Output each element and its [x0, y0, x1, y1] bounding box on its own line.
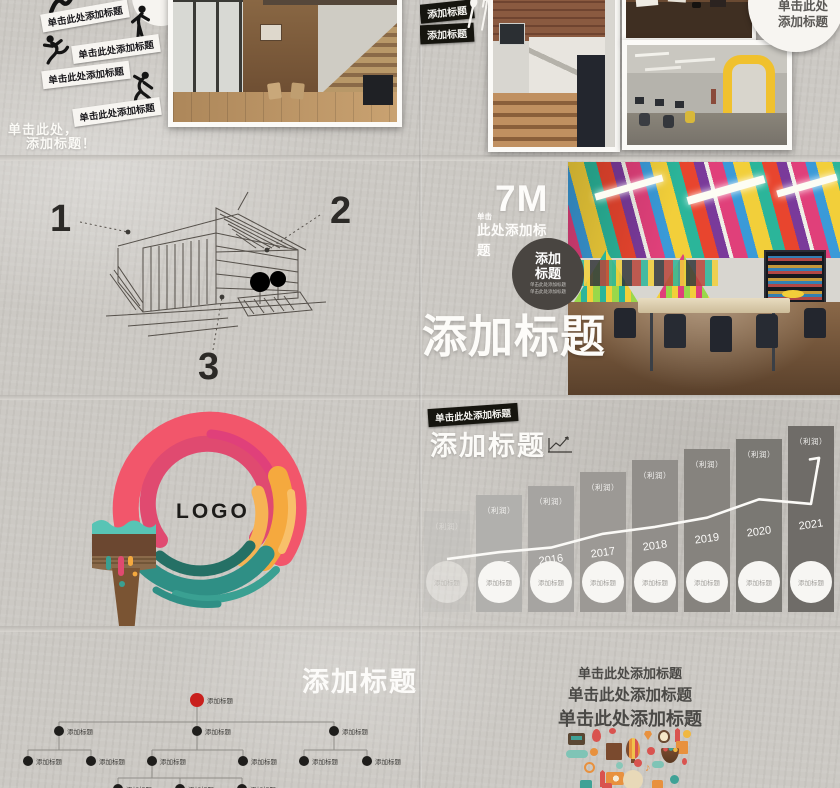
stat-block: 7M 单击 此处添加标题	[477, 182, 548, 215]
bar-year-label: 2017	[579, 544, 626, 562]
chart-bar: （利润）2017添加标题	[580, 472, 626, 612]
photo-chair	[639, 113, 650, 126]
node-dot	[192, 726, 202, 736]
tree-node: 添加标题	[113, 784, 152, 788]
desk-photo	[622, 0, 756, 42]
hab-icon	[626, 738, 640, 759]
bar-year-label: 2020	[735, 523, 782, 541]
dot-icon	[590, 748, 598, 756]
photo-person	[711, 89, 716, 104]
slide-logo-brush[interactable]: LOGO	[0, 400, 420, 626]
bar-value-label: （利润）	[632, 470, 678, 481]
dancer-figure-icon	[40, 32, 72, 68]
photo-monitor	[675, 101, 684, 108]
tree-node-label: 添加标题	[251, 756, 277, 766]
tree-node: 添加标题	[362, 756, 401, 766]
photo-monitor	[655, 99, 664, 106]
tree-node: 添加标题	[237, 784, 276, 788]
node-dot	[238, 756, 248, 766]
bar-value-label: （利润）	[736, 449, 782, 460]
photo-floor	[627, 113, 787, 145]
colorful-cafeteria-photo	[568, 162, 840, 395]
bar-year-label: 2019	[683, 530, 730, 548]
chart-bar: （利润）2021添加标题	[788, 426, 834, 612]
photo-book	[710, 0, 726, 7]
bar-year-label: 2018	[631, 537, 678, 555]
slide-profit-chart[interactable]: 单击此处添加标题 添加标题 （利润）2014添加标题（利润）2015添加标题（利…	[420, 400, 840, 626]
slide-7m-photo[interactable]: 7M 单击 此处添加标题 添加 标题 单击此处添加标题 单击此处添加标题 添加标…	[420, 162, 840, 395]
photo-chair	[664, 314, 686, 348]
slide-figures-cover[interactable]: 单击此处添加标题 单击此处添加标题 单击此处添加标题 单击此处添加标题 单击此处…	[0, 0, 420, 157]
root-dot	[190, 693, 204, 707]
bar-footer-circle: 添加标题	[478, 561, 520, 603]
tree-node-label: 添加标题	[207, 695, 233, 705]
bar-footer-circle: 添加标题	[530, 561, 572, 603]
bowl-icon	[661, 748, 679, 763]
circle-big-icon	[623, 770, 643, 788]
tree-node-label: 添加标题	[99, 756, 125, 766]
photo-chair	[290, 82, 305, 99]
title-strip: 单击此处添加标题	[71, 34, 161, 64]
slide-org-tree[interactable]: 添加标题 添加标题 添加标题 添加标题 添加标题 添加标题 添加标题 添加标题 …	[0, 632, 420, 788]
bar-value-label: （利润）	[684, 459, 730, 470]
photo-chair	[614, 308, 636, 338]
pencil-icon	[675, 728, 680, 742]
note-icon: ♪	[645, 763, 653, 774]
badge-small2: 单击此处添加标题	[530, 289, 566, 296]
stairwell-photo	[488, 0, 620, 152]
tree-node-label: 添加标题	[250, 784, 276, 788]
bar-chart: （利润）2014添加标题（利润）2015添加标题（利润）2016添加标题（利润）…	[420, 400, 840, 626]
tree-node-label: 添加标题	[188, 784, 214, 788]
tree-node-label: 添加标题	[36, 756, 62, 766]
chart-bar: （利润）2020添加标题	[736, 439, 782, 612]
template-preview-grid: 单击此处添加标题 单击此处添加标题 单击此处添加标题 单击此处添加标题 单击此处…	[0, 0, 840, 788]
bar-value-label: （利润）	[788, 436, 834, 447]
bar-value-label: （利润）	[528, 496, 574, 507]
dot-icon	[682, 758, 687, 765]
tree-root-node: 添加标题	[190, 693, 233, 707]
tree-node: 添加标题	[238, 756, 277, 766]
dot-icon	[647, 747, 655, 755]
bar-value-label: （利润）	[424, 521, 470, 532]
bar-footer-circle: 添加标题	[634, 561, 676, 603]
badge-small1: 单击此处添加标题	[530, 282, 566, 289]
tree-node-label: 添加标题	[67, 726, 93, 736]
photo-chair	[804, 308, 826, 338]
photo-chair	[663, 115, 674, 128]
cloud-icon	[566, 750, 588, 758]
tree-node: 添加标题	[329, 726, 368, 736]
node-dot	[54, 726, 64, 736]
photo-camera-item	[692, 2, 701, 8]
marker-3: 3	[198, 348, 219, 386]
chart-bar: （利润）2016添加标题	[528, 486, 574, 612]
slide-sketch-numbers[interactable]: 1 2 3	[0, 162, 420, 395]
tree-node: 添加标题	[175, 784, 214, 788]
circle-callout-text: 单击此处 添加标题	[758, 0, 840, 30]
chart-bar: （利润）2015添加标题	[476, 495, 522, 612]
icon-cluster: ♪	[420, 632, 840, 788]
photo-chair	[710, 316, 732, 352]
photo-yellow-chair	[685, 111, 695, 123]
dot-icon	[634, 759, 642, 767]
node-dot	[113, 784, 123, 788]
photo-table-leg	[650, 313, 653, 371]
bar-year-label: 2021	[787, 516, 834, 534]
dot-icon	[670, 775, 679, 784]
badge-line2: 标题	[535, 267, 561, 282]
stat-number: 7M	[495, 182, 548, 215]
sq-icon	[652, 780, 663, 788]
badge-line1: 添加	[535, 252, 561, 267]
node-dot	[86, 756, 96, 766]
bar-value-label: （利润）	[476, 505, 522, 516]
gift-icon	[606, 743, 622, 760]
bar-footer-circle: 添加标题	[790, 561, 832, 603]
bar-footer-circle: 添加标题	[582, 561, 624, 603]
tree-node: 添加标题	[192, 726, 231, 736]
node-dot	[299, 756, 309, 766]
tree-node-label: 添加标题	[205, 726, 231, 736]
circle-callout-line1: 单击此处	[758, 0, 840, 15]
laptop-icon	[568, 733, 585, 745]
tree-node: 添加标题	[299, 756, 338, 766]
tree-node: 添加标题	[23, 756, 62, 766]
tree-node: 添加标题	[54, 726, 93, 736]
fork-spoon-icon	[464, 0, 493, 34]
photo-bowl	[782, 290, 804, 298]
slide-title: 添加标题	[422, 300, 606, 365]
tree-node-label: 添加标题	[160, 756, 186, 766]
sq-icon	[580, 780, 592, 788]
dot-icon	[609, 728, 616, 734]
photo-beam	[263, 0, 397, 5]
circle-callout-line2: 添加标题	[758, 15, 840, 31]
node-dot	[329, 726, 339, 736]
slide-text-icons[interactable]: 单击此处添加标题 单击此处添加标题 单击此处添加标题 ♪	[420, 632, 840, 788]
dot-icon	[683, 730, 691, 738]
balloon-icon	[592, 729, 601, 742]
logo-text: LOGO	[176, 500, 250, 524]
node-dot	[175, 784, 185, 788]
tree-node-label: 添加标题	[375, 756, 401, 766]
node-dot	[147, 756, 157, 766]
office-interior-photo	[168, 0, 402, 127]
photo-counter	[363, 75, 393, 105]
dot-icon	[616, 762, 623, 769]
node-dot	[237, 784, 247, 788]
photo-wall-art	[261, 25, 281, 40]
tree-node: 添加标题	[86, 756, 125, 766]
bar-footer-circle: 添加标题	[426, 561, 468, 603]
office-yellow-photo	[622, 40, 792, 150]
slide-photo-collage[interactable]: 单击此处 添加标题 添加标题 添加标题	[420, 0, 840, 157]
marker-2: 2	[330, 192, 351, 230]
bulb-icon	[658, 730, 670, 743]
pin-icon	[644, 731, 652, 740]
title-strip: 单击此处添加标题	[72, 97, 162, 127]
chart-bar: （利润）2019添加标题	[684, 449, 730, 612]
marker-1: 1	[50, 200, 71, 238]
photo-glass-wall	[173, 0, 243, 97]
photo-monitor	[635, 97, 644, 104]
photo-window	[499, 23, 525, 45]
tree-node-label: 添加标题	[126, 784, 152, 788]
photo-table	[638, 298, 790, 313]
node-dot	[23, 756, 33, 766]
node-dot	[362, 756, 372, 766]
photo-floor	[568, 302, 840, 395]
tree-node: 添加标题	[147, 756, 186, 766]
ring-icon	[584, 762, 595, 773]
chart-bar: （利润）2018添加标题	[632, 460, 678, 612]
chart-bar: （利润）2014添加标题	[424, 511, 470, 612]
tree-node-label: 添加标题	[312, 756, 338, 766]
cloud-icon	[652, 761, 664, 768]
cover-caption-line2: 添加标题！	[26, 133, 96, 152]
sq-icon	[602, 783, 612, 788]
tree-node-label: 添加标题	[342, 726, 368, 736]
bar-value-label: （利润）	[580, 482, 626, 493]
photo-chair	[267, 82, 282, 100]
bar-footer-circle: 添加标题	[738, 561, 780, 603]
tree-connectors	[0, 632, 420, 788]
photo-kitchen-counter	[568, 260, 718, 286]
photo-chair	[756, 314, 778, 348]
bar-footer-circle: 添加标题	[686, 561, 728, 603]
photo-geometric-ceiling	[568, 162, 840, 258]
photo-wood-wall	[243, 0, 318, 92]
photo-dark-panel	[577, 55, 605, 147]
